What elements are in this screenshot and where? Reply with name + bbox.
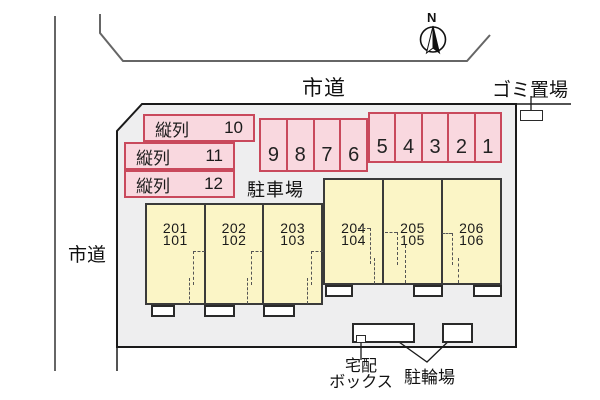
unit-label: 203 103	[264, 222, 321, 246]
unit-dashed-line	[442, 233, 452, 234]
unit-dashed-line	[405, 245, 406, 283]
site-plan: N 市道 市道 ゴミ置場 縦列 10 縦列 11 縦列 12 9 8 7 6 5…	[0, 0, 600, 400]
stall-number: 8	[295, 144, 306, 167]
entrance-step	[263, 305, 295, 317]
unit-dashed-line	[397, 232, 398, 265]
unit: 203 103	[262, 205, 321, 303]
building-right: 204 104 205 105 206 106	[323, 178, 502, 285]
delivery-box-label-line1: 宅配	[321, 359, 401, 375]
tandem-label: 縦列	[155, 116, 189, 141]
tandem-number: 12	[204, 174, 223, 194]
unit: 202 102	[204, 205, 263, 303]
unit-number-lower: 103	[264, 234, 321, 246]
north-label: N	[427, 10, 436, 25]
unit-dashed-line	[358, 228, 370, 229]
unit-number-lower: 104	[325, 234, 382, 246]
unit-dashed-line	[452, 233, 453, 265]
unit-number-lower: 102	[206, 234, 263, 246]
parking-stall-block-front: 5 4 3 2 1	[368, 112, 502, 163]
garbage-area-box	[520, 110, 543, 121]
unit-dashed-line	[458, 258, 459, 283]
parking-stall: 2	[447, 114, 473, 161]
road-label-left: 市道	[68, 240, 106, 267]
delivery-box-label-line2: ボックス	[321, 375, 401, 391]
unit-dashed-line	[385, 232, 397, 233]
unit-label: 202 102	[206, 222, 263, 246]
entrance-step	[325, 285, 353, 297]
parking-stall: 9	[261, 120, 286, 170]
tandem-parking-row: 縦列 10	[143, 114, 255, 142]
unit-dashed-line	[370, 228, 371, 264]
delivery-box-label: 宅配 ボックス	[321, 359, 401, 391]
unit: 201 101	[147, 205, 204, 303]
stall-number: 1	[482, 136, 493, 159]
stall-number: 3	[429, 136, 440, 159]
unit-label: 201 101	[147, 222, 204, 246]
parking-stall: 8	[286, 120, 313, 170]
unit-dashed-line	[251, 251, 252, 285]
unit-number-lower: 105	[384, 234, 441, 246]
stall-number: 7	[321, 144, 332, 167]
stall-number: 5	[377, 136, 388, 159]
unit-dashed-line	[311, 251, 312, 285]
entrance-step	[151, 305, 175, 317]
unit-dashed-line	[374, 258, 375, 284]
entrance-step	[413, 285, 443, 297]
unit: 206 106	[441, 180, 500, 283]
delivery-box	[356, 335, 366, 343]
stall-number: 2	[456, 136, 467, 159]
parking-stall: 4	[394, 114, 420, 161]
parking-area-label: 駐車場	[247, 176, 304, 202]
unit-dashed-line	[193, 251, 194, 285]
unit-dashed-line	[193, 251, 205, 252]
tandem-number: 11	[205, 146, 223, 166]
tandem-label: 縦列	[136, 144, 170, 169]
tandem-parking-row: 縦列 11	[124, 142, 235, 170]
tandem-label: 縦列	[136, 172, 170, 197]
unit-label: 205 105	[384, 222, 441, 246]
parking-stall: 5	[370, 114, 394, 161]
north-compass-icon	[421, 26, 446, 53]
garbage-area-label: ゴミ置場	[492, 75, 568, 102]
unit-dashed-line	[189, 278, 190, 304]
bicycle-parking-box-right	[442, 323, 473, 343]
entrance-step	[473, 285, 502, 297]
stall-number: 6	[348, 144, 359, 167]
parking-stall-block-back: 9 8 7 6	[259, 118, 368, 172]
parking-stall: 7	[313, 120, 340, 170]
bicycle-parking-label: 駐輪場	[404, 363, 455, 388]
parking-stall: 1	[474, 114, 500, 161]
road-label-top: 市道	[302, 72, 346, 102]
building-left: 201 101 202 102 203 103	[145, 203, 323, 305]
unit-dashed-line	[247, 278, 248, 304]
unit-dashed-line	[251, 251, 263, 252]
entrance-step	[204, 305, 235, 317]
unit-number-lower: 101	[147, 234, 204, 246]
parking-stall: 3	[421, 114, 447, 161]
unit-label: 204 104	[325, 222, 382, 246]
stall-number: 4	[403, 136, 414, 159]
stall-number: 9	[268, 144, 279, 167]
tandem-number: 10	[224, 118, 243, 138]
unit-dashed-line	[311, 251, 323, 252]
tandem-parking-row: 縦列 12	[124, 170, 235, 198]
parking-stall: 6	[339, 120, 366, 170]
unit-dashed-line	[307, 278, 308, 304]
